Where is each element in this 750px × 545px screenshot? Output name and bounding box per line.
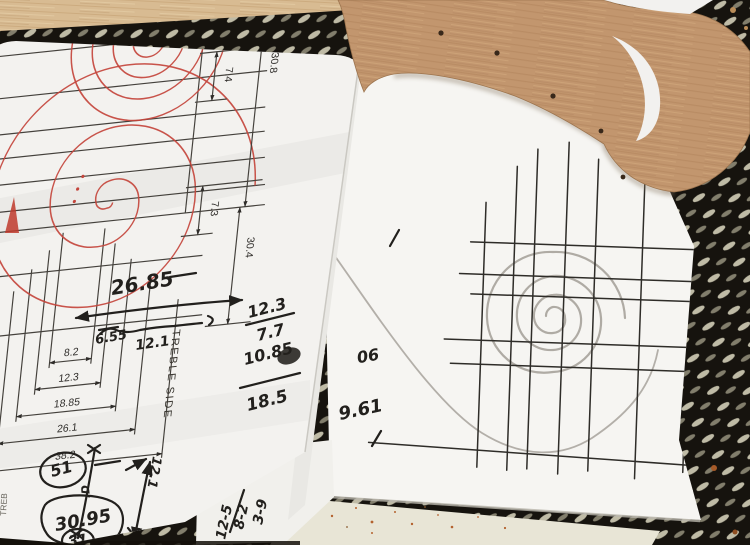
dimension-label: 7.3 <box>208 201 221 217</box>
dimension-label: 12.3 <box>58 371 80 385</box>
handwritten-note-flipped: 90 <box>355 344 380 367</box>
template-hole <box>621 175 626 180</box>
dimension-label: 8.2 <box>63 346 79 360</box>
template-hole <box>550 93 555 98</box>
dimension-label: 30.8 <box>267 52 281 74</box>
template-hole <box>494 50 499 55</box>
workbench-scene: 90 9.61 3-9 8-2 12-5 <box>0 0 750 545</box>
workbench-photo: 90 9.61 3-9 8-2 12-5 <box>0 0 750 545</box>
template-hole <box>599 129 604 134</box>
dimension-label: 7.4 <box>222 67 235 83</box>
dimension-label: 26.1 <box>56 421 78 435</box>
edge-partial-label: TREB <box>0 493 9 516</box>
template-hole <box>438 30 443 35</box>
dimension-label: 30.4 <box>242 236 256 258</box>
mat-bottom-strip <box>90 541 300 545</box>
